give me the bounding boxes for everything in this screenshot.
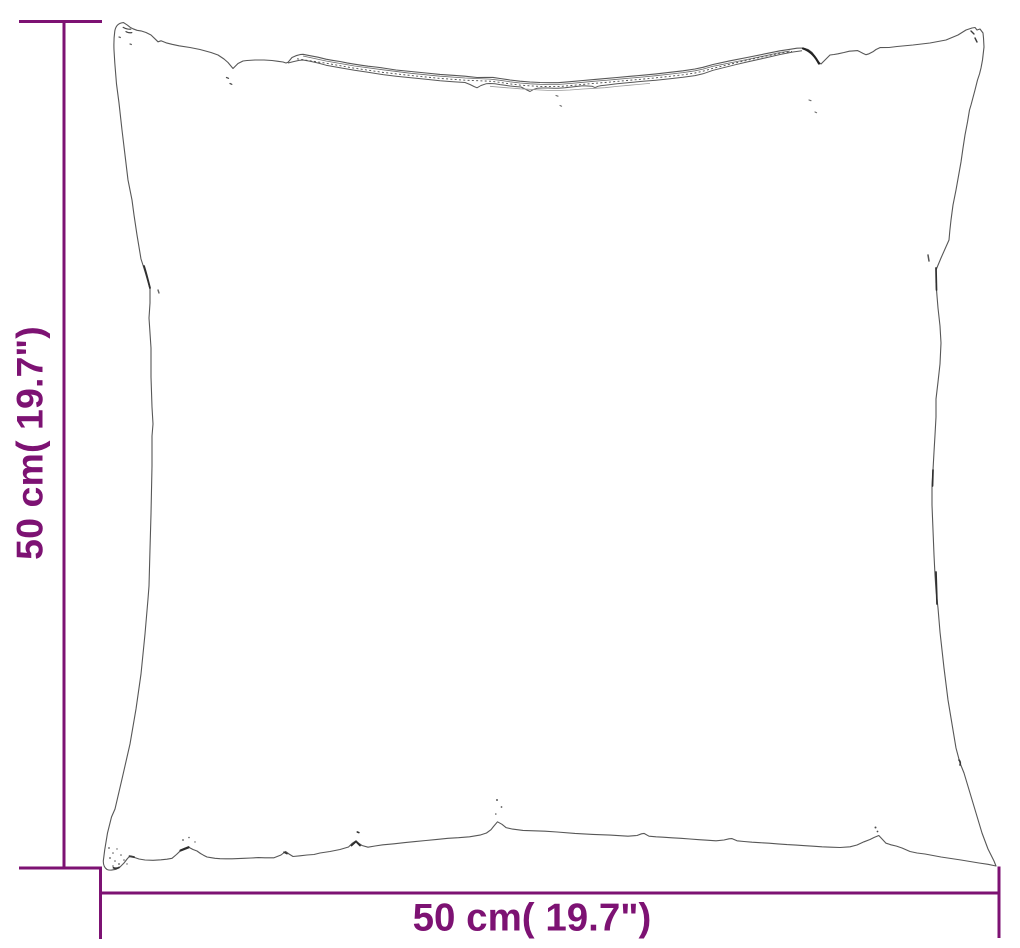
svg-text:50 cm( 19.7"): 50 cm( 19.7")	[9, 326, 51, 560]
svg-text:50 cm( 19.7"): 50 cm( 19.7")	[413, 897, 652, 940]
